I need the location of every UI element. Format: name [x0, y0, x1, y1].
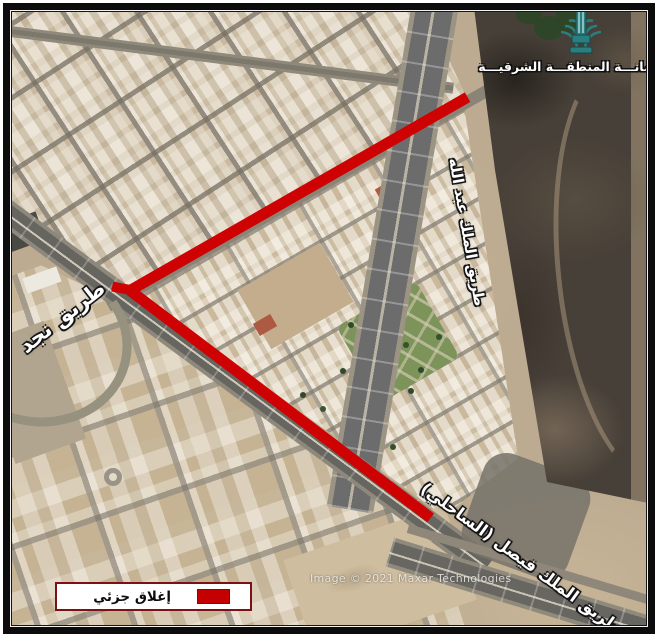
road-closure-map-figure: طريق الملك عبد الله طريق نجد طريق الملك …	[0, 0, 658, 637]
roundabout	[104, 468, 122, 486]
roadside-trees	[300, 392, 306, 398]
maxar-watermark: Image © 2021 Maxar Technologies	[310, 572, 511, 585]
municipality-name: أمانـــة المنطقـــة الشرقيـــة	[508, 59, 656, 74]
partial-closure-swatch	[197, 589, 230, 604]
municipality-logo-icon	[550, 3, 612, 57]
satellite-map: طريق الملك عبد الله طريق نجد طريق الملك …	[0, 0, 658, 637]
legend: إغلاق جزئي	[55, 582, 252, 611]
partial-closure-label: إغلاق جزئي	[93, 589, 171, 605]
park-trees	[348, 322, 354, 328]
